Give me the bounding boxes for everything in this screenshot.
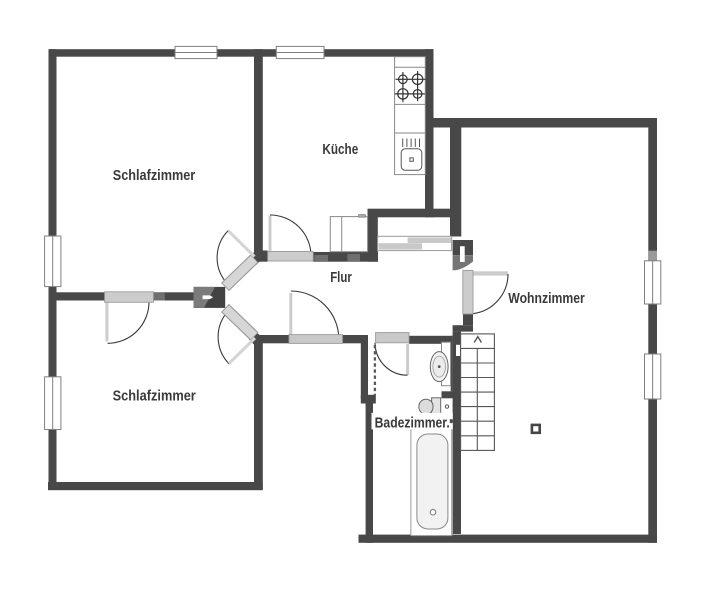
- svg-text:Wohnzimmer: Wohnzimmer: [508, 291, 585, 307]
- svg-text:Badezimmer.: Badezimmer.: [375, 416, 450, 432]
- svg-text:Küche: Küche: [322, 142, 358, 158]
- svg-text:Flur: Flur: [330, 270, 352, 286]
- svg-text:Schlafzimmer: Schlafzimmer: [113, 168, 196, 184]
- svg-text:Schlafzimmer: Schlafzimmer: [113, 389, 196, 405]
